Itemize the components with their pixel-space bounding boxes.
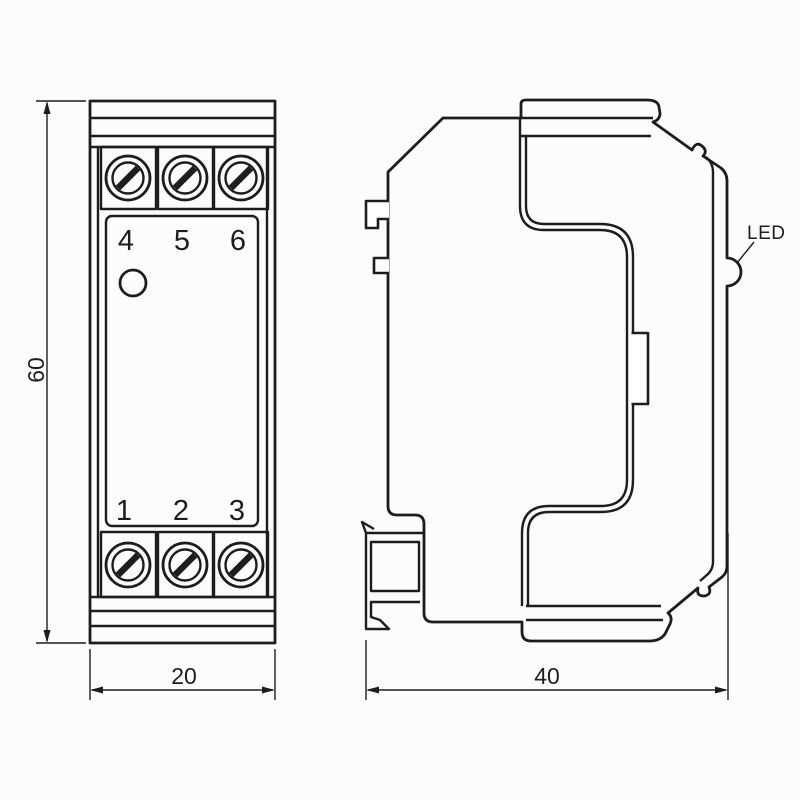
side-view: LED — [362, 100, 785, 641]
front-label-panel — [106, 216, 258, 526]
front-top-cap — [90, 118, 275, 147]
terminal-screw-icon — [106, 543, 150, 587]
terminal-number: 1 — [116, 495, 132, 527]
terminal-number: 4 — [118, 225, 134, 257]
side-left-tab-upper — [366, 201, 389, 228]
side-right-inner-wall — [700, 157, 713, 581]
led-callout: LED — [737, 223, 785, 263]
terminal-screw-icon — [106, 156, 150, 200]
dimension-value-depth: 40 — [534, 663, 560, 689]
arrowhead-down-icon — [44, 630, 51, 643]
terminal-screw-icon — [163, 543, 207, 587]
arrowhead-right-icon — [262, 687, 275, 694]
led-label: LED — [747, 223, 785, 244]
dimension-depth: 40 — [366, 533, 728, 700]
front-bottom-terminal-block — [101, 532, 268, 597]
engineering-drawing: 4 5 6 1 2 3 60 20 — [0, 0, 800, 800]
terminal-number: 3 — [229, 495, 245, 527]
side-moulding-profile-inner — [526, 137, 633, 606]
terminal-screw-icon — [219, 543, 263, 587]
arrowhead-up-icon — [44, 101, 51, 114]
terminal-number: 5 — [174, 225, 190, 257]
dimension-height: 60 — [23, 101, 86, 643]
front-led-indicator — [120, 270, 146, 296]
dimension-width: 20 — [90, 649, 275, 700]
front-top-terminal-block — [101, 147, 268, 209]
front-view: 4 5 6 1 2 3 — [90, 101, 275, 643]
dimension-value-width: 20 — [171, 663, 197, 689]
dimension-value-height: 60 — [23, 357, 49, 383]
front-bottom-cap — [90, 597, 275, 626]
din-rail-clip — [362, 522, 423, 629]
side-housing-outline — [388, 100, 741, 641]
arrowhead-right-icon — [715, 687, 728, 694]
terminal-number: 2 — [173, 495, 189, 527]
top-terminal-numbers: 4 5 6 — [118, 225, 246, 257]
arrowhead-left-icon — [90, 687, 103, 694]
arrowhead-left-icon — [366, 687, 379, 694]
side-profile-tab — [632, 333, 649, 404]
terminal-number: 6 — [230, 225, 246, 257]
terminal-screw-icon — [163, 156, 207, 200]
led-leader-line — [737, 242, 754, 263]
terminal-screw-icon — [219, 156, 263, 200]
din-rail-slot — [371, 542, 419, 591]
side-left-tab-lower — [374, 258, 389, 273]
bottom-terminal-numbers: 1 2 3 — [116, 495, 245, 527]
side-moulding-profile-outer — [520, 118, 627, 606]
